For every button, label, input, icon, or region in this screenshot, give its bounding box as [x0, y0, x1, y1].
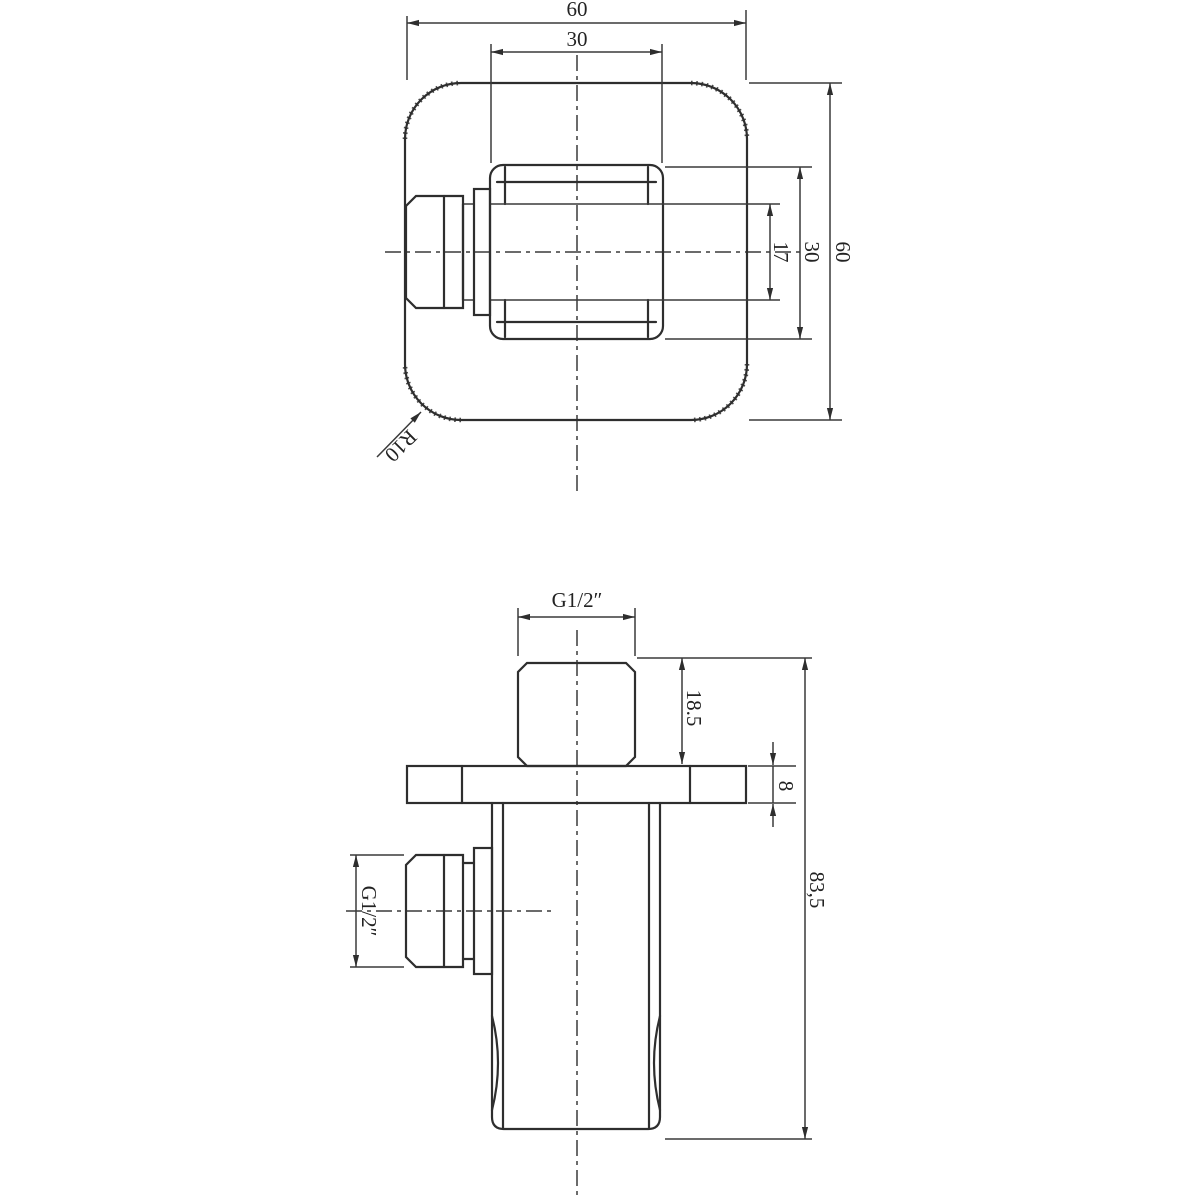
- front-view: G1/2″ 18.5 8 83,5 G1/2″: [346, 588, 829, 1197]
- dim-label-side-30: 30: [800, 242, 824, 263]
- dim-front-side-thread: G1/2″: [350, 855, 404, 967]
- dim-top-height-30: 30: [665, 167, 824, 339]
- dim-label-top-thread: G1/2″: [552, 588, 603, 612]
- dim-front-83-5: 83,5: [665, 658, 829, 1139]
- dim-label-8: 8: [774, 781, 798, 792]
- dim-corner-radius: R10: [377, 412, 422, 467]
- dim-label-83-5: 83,5: [805, 872, 829, 909]
- technical-drawing-page: 60 30 17 30 60: [0, 0, 1200, 1200]
- dim-top-17: 17: [769, 204, 793, 300]
- dim-label-side-thread: G1/2″: [357, 886, 381, 937]
- dim-label-side-60: 60: [831, 242, 855, 263]
- dim-front-8: 8: [748, 742, 798, 827]
- top-view-centerlines: [385, 55, 800, 492]
- technical-drawing-canvas: 60 30 17 30 60: [0, 0, 1200, 1200]
- front-view-body: [492, 803, 660, 1129]
- dim-label-18-5: 18.5: [682, 690, 706, 727]
- dim-label-17: 17: [769, 242, 793, 263]
- top-view: 60 30 17 30 60: [377, 0, 855, 492]
- dim-label-top-30: 30: [567, 27, 588, 51]
- dim-label-r10: R10: [380, 425, 422, 467]
- dim-front-18-5: 18.5: [682, 658, 706, 764]
- dim-label-top-60: 60: [567, 0, 588, 21]
